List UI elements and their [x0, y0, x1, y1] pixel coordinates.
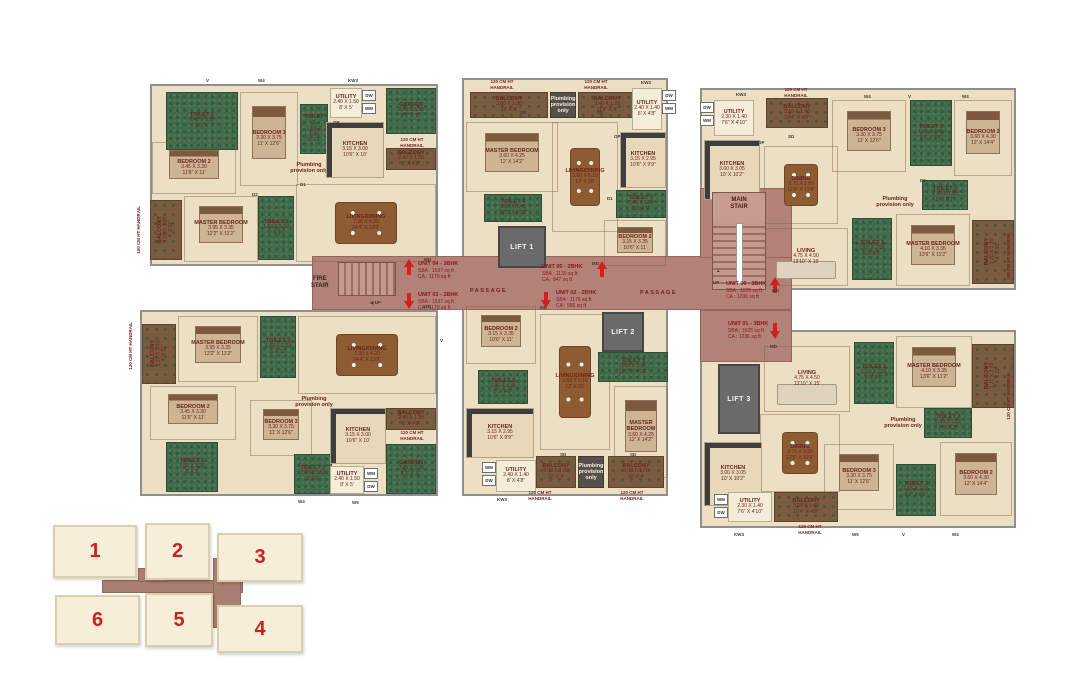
room-label: TOILET 31.50 X 3.305' X 11': [262, 218, 290, 238]
room-toilet-1: TOILET 11.50 X 2.555' X 8'6": [854, 342, 894, 404]
room-label: KITCHEN3.00 X 3.0510' X 10'2": [718, 160, 746, 180]
marker-kw3: KW3: [734, 532, 744, 537]
room-toilet-3: TOILET 31.50 X 3.305' X 11': [258, 196, 294, 260]
main-stair-rail: [736, 223, 743, 284]
room-kitchen: KITCHEN3.15 X 2.9510'6" X 9'9": [620, 132, 666, 188]
room-dim-ft: 5'2" X 8'6": [918, 136, 944, 142]
room-dim-ft: 8'2" X 11': [398, 114, 424, 120]
marker-v: V: [440, 338, 443, 343]
handrail-label: 120 CM HT HANDRAIL: [128, 322, 134, 370]
room-label: BEDROOM 23.45 X 3.3011'6" X 11': [176, 158, 211, 178]
appliance-dw: DW: [364, 481, 378, 492]
marker-md: MD: [540, 305, 547, 310]
marker-up: ◀ UP: [370, 300, 381, 306]
room-label: KITCHEN3.00 X 3.0510' X 10'2": [719, 464, 747, 484]
handrail-label: 120 CM HT HANDRAIL: [780, 524, 840, 535]
room-utility: UTILITY2.40 X 1.408' X 4'8"DWWM: [632, 88, 662, 130]
room-toilet-1: TOILET 13.50 X 1.4511'6" X 4'10": [598, 352, 668, 382]
room-toilet-1: TOILET 11.50 X 2.555' X 8'6": [852, 218, 892, 280]
room-label: TOILET 22.40 X 1.358' X 4'6": [489, 377, 517, 397]
marker-md: MD: [772, 288, 779, 293]
keyplan-unit-number: 3: [254, 546, 265, 569]
keyplan-unit-number: 2: [172, 540, 183, 563]
room-dim-ft: 10' X 4': [622, 475, 649, 481]
room-dim-ft: 10'6" X 10': [342, 153, 368, 159]
room-utility: UTILITY2.40 X 1.508' X 5'WMDW: [330, 466, 364, 494]
room-toilet-3: TOILET 31.55 X 2.555'2" X 8'6": [896, 464, 936, 516]
room-master-bedroom: MASTER BEDROOM4.10 X 3.3513'6" X 11'2": [896, 214, 970, 286]
room-dim-ft: 12' X 14'2": [616, 438, 666, 444]
room-bedroom-2: BEDROOM 23.15 X 3.3510'6" X 11': [604, 220, 666, 266]
room-label: KITCHEN3.15 X 3.0010'6" X 10': [341, 140, 369, 160]
unit-tag-line: CA : 1236 sq ft: [728, 334, 790, 340]
room-label: BEDROOM 23.60 X 4.3012' X 14'4": [965, 128, 1000, 148]
room-label: LIVING/DINING3.60 X 6.1012' X 20': [554, 372, 595, 392]
floorplan: PASSAGEPASSAGEFIRE STAIRMAIN STAIRLIFT 1…: [0, 0, 1080, 698]
room-name: MASTER BEDROOM: [616, 420, 666, 433]
room-plumbing-provision-only: Plumbing provision only: [578, 456, 604, 488]
room-label: MASTER BEDROOM3.95 X 3.3512'2" X 11'2": [193, 219, 248, 239]
unit-direction-arrow-down: [404, 292, 414, 309]
room-balcony: BALCONY3.60 X 1.3012' X 4': [536, 456, 576, 488]
room-label: Plumbing provision only: [882, 416, 924, 431]
passage-label: PASSAGE: [640, 290, 677, 296]
room-dim-ft: 12'2" X 11'2": [194, 232, 247, 238]
room-label: TOILET 22.40 X 1.508' X 5': [299, 464, 327, 484]
room-label: UTILITY2.40 X 1.408' X 4'8": [502, 466, 530, 486]
room-toilet-3: TOILET 31.50 X 3.305' X 11': [260, 316, 296, 378]
marker-md: MD: [424, 304, 431, 309]
marker-v: V: [206, 78, 209, 83]
marker-w4: W4: [962, 94, 969, 99]
room-label: BEDROOM 33.30 X 3.7511' X 12'6": [851, 126, 886, 146]
room-plumbing-provision-only: Plumbing provision only: [874, 190, 916, 214]
unit-tag-line: CA : 956 sq ft: [556, 303, 618, 309]
room-living: LIVING4.75 X 4.5013'10" X 15': [764, 346, 850, 412]
room-dim-ft: 12' X 14'4": [959, 482, 992, 488]
room-dim-ft: 8' X 4'8": [503, 479, 529, 485]
room-name: Plumbing provision only: [295, 396, 333, 409]
room-toilet-4: TOILET 43.50 X 1.4511'6" X 4'10": [484, 194, 542, 222]
room-dim-ft: 10'6" X 10': [345, 439, 371, 445]
unit-tag-line: UNIT 03 - 3BHK: [418, 292, 480, 299]
room-balcony: BALCONY2.40 X 1.308' X 4'6": [386, 408, 436, 430]
room-dim-ft: 5' X 8'6": [859, 252, 885, 258]
marker-w4: W4: [258, 78, 265, 83]
marker-w4: W4: [952, 532, 959, 537]
marker-sd: SD: [630, 452, 636, 457]
room-dim-ft: 11'6" X 11': [176, 416, 209, 422]
room-label: TOILET 43.50 X 1.4511'6" X 4'10": [498, 198, 528, 218]
room-label: TOILET 31.55 X 2.555'2" X 8'6": [917, 123, 945, 143]
room-dim-ft: 8' X 5': [189, 124, 215, 130]
appliance-wm: WM: [714, 494, 728, 505]
marker-md: MD: [424, 257, 431, 262]
marker-kw3: KW3: [641, 80, 651, 85]
room-label: MASTER BEDROOM4.10 X 3.3513'6" X 11'2": [906, 362, 961, 382]
room-dim-ft: 12' X 20': [565, 180, 604, 186]
room-dim-ft: 11'6" X 4'10": [499, 211, 527, 217]
room-dim-ft: 11' X 12'6": [852, 139, 885, 145]
marker-kw3: KW3: [348, 78, 358, 83]
unit-direction-arrow-down: [770, 322, 780, 339]
room-dim-ft: 8' X 5': [333, 106, 359, 112]
unit-tag-line: UNIT 04 - 3BHK: [418, 261, 480, 268]
room-label: TOILET 11.50 X 2.555' X 8'6": [858, 239, 886, 259]
room-label: MASTER BEDROOM3.60 X 4.2512' X 14'2": [484, 147, 539, 167]
appliance-wm: WM: [364, 468, 378, 479]
room-balcony: BALCONY3.10 X 1.4010'4" X 4'8": [774, 492, 838, 522]
room-utility: UTILITY2.40 X 1.508' X 5'DWWM: [330, 88, 362, 118]
room-label: UTILITY2.30 X 1.407'6" X 4'10": [736, 497, 764, 517]
room-dim-ft: 8' X 4'6": [397, 422, 424, 428]
room-label: BEDROOM 33.30 X 3.7511' X 12'6": [841, 467, 876, 487]
room-living-dining: LIVING/DINING7.30 X 4.2024'4" X 13'9": [298, 316, 436, 394]
room-name: Plumbing provision only: [550, 96, 575, 115]
room-utility: UTILITY2.30 X 1.407'6" X 4'10"WMDW: [728, 492, 772, 522]
room-plumbing-provision-only: Plumbing provision only: [550, 92, 576, 118]
room-label: BEDROOM 33.30 X 3.7511' X 12'6": [251, 129, 286, 149]
room-dim-ft: 12' X 20': [555, 385, 594, 391]
appliance-wm: WM: [662, 103, 676, 114]
room-plumbing-provision-only: Plumbing provision only: [288, 158, 330, 178]
main-stair: MAIN STAIR: [712, 192, 766, 290]
room-label: BALCONY1.20 X 3.304' X 11': [149, 339, 169, 368]
room-name: Plumbing provision only: [883, 417, 923, 430]
room-dim-ft: 12'2" X 11'2": [191, 352, 244, 358]
appliance-wm: WM: [362, 103, 376, 114]
room-label: BEDROOM 23.15 X 3.3510'6" X 11': [617, 233, 652, 253]
appliance-dw: DW: [662, 90, 676, 101]
room-label: TOILET 31.50 X 3.305' X 11': [264, 337, 292, 357]
room-dim-ft: 10'6" X 11': [618, 246, 651, 252]
room-dim-ft: 8' X 4'6": [628, 207, 654, 213]
room-dim-ft: 11' X 12'6": [252, 142, 285, 148]
marker-d2: D2: [252, 192, 258, 197]
room-dining: DINING3.75 X 3.5012'6" X 11'8": [764, 146, 838, 224]
handrail-label: 120 CM HT HANDRAIL: [136, 206, 142, 254]
room-label: BALCONY3.10 X 1.4010'4" X 4'8": [791, 497, 820, 517]
marker-d1: D1: [607, 196, 613, 201]
room-dim-ft: 8' X 5': [300, 477, 326, 483]
marker-d1: D1: [852, 240, 858, 245]
room-dim-ft: 5' X 8'6": [861, 376, 887, 382]
room-toilet-1: TOILET 11.50 X 1.505' X 5': [300, 104, 328, 154]
room-dim-ft: 5' X 11': [263, 231, 289, 237]
room-dim-ft: 12' X 14'2": [485, 160, 538, 166]
room-dim-ft: 8' X 4'6": [490, 390, 516, 396]
room-label: TOILET 11.50 X 1.505' X 5': [178, 457, 206, 477]
room-dim-ft: 11' X 12'6": [264, 431, 297, 437]
room-label: LIVING/DINING3.60 X 6.1012' X 20': [564, 167, 605, 187]
room-dim-ft: 12' X 4': [495, 108, 522, 114]
handrail-label: 120 CM HT HANDRAIL: [766, 87, 826, 98]
room-dim-ft: 10'6" X 11': [484, 338, 517, 344]
room-dim-ft: 10'4" X 4'8": [783, 116, 810, 122]
room-label: LIVING4.75 X 4.5013'10" X 15': [793, 369, 821, 389]
room-dim-ft: 10' X 10'2": [720, 477, 746, 483]
marker-up: UP: [713, 280, 719, 285]
room-toilet-1: TOILET 11.50 X 1.505' X 5': [166, 442, 218, 492]
appliance-dw: DW: [482, 475, 496, 486]
room-dim-ft: 13'6" X 11'2": [906, 253, 959, 259]
appliance-wm: WM: [482, 462, 496, 473]
room-label: UTILITY2.40 X 1.508' X 5': [333, 470, 361, 490]
room-label: TOILET 22.40 X 1.508' X 5': [188, 111, 216, 131]
room-balcony: BALCONY3.00 X 1.2010' X 4': [608, 456, 664, 488]
room-plumbing-provision-only: Plumbing provision only: [882, 412, 924, 434]
room-dim-ft: 10'6" X 9'9": [630, 163, 656, 169]
room-label: Plumbing provision only: [577, 462, 604, 483]
marker-v: V: [902, 532, 905, 537]
room-label: BALCONY3.00 X 1.2010' X 4': [621, 462, 650, 482]
room-dim-ft: 11'6" X 11': [177, 171, 210, 177]
room-name: Plumbing provision only: [289, 162, 329, 175]
marker-sd: SD: [788, 134, 794, 139]
room-label: BALCONY1.20 X 3.304' X 11': [983, 237, 1003, 266]
room-toilet-2: TOILET 22.40 X 1.558' X 5'2": [922, 180, 968, 210]
room-dim-ft: 13'6" X 11'2": [907, 375, 960, 381]
appliance-wm: WM: [700, 115, 714, 126]
room-label: Plumbing provision only: [294, 395, 334, 410]
room-kitchen: KITCHEN3.15 X 3.0010'6" X 10': [330, 408, 386, 464]
room-dim-ft: 12' X 4': [542, 475, 569, 481]
room-label: MASTER BEDROOM3.95 X 3.3512'2" X 11'2": [190, 339, 245, 359]
room-toilet-3: TOILET 31.55 X 2.555'2" X 8'6": [910, 100, 952, 166]
room-balcony: BALCONY1.20 X 3.304' X 11': [142, 324, 176, 384]
marker-kw3: KW3: [497, 497, 507, 502]
room-dim-ft: 4' X 11': [996, 238, 1002, 265]
unit-tag-line: CA : 1236 sq ft: [726, 294, 788, 300]
room-dim-ft: 4' X 11': [169, 216, 175, 243]
lift-3: LIFT 3: [718, 364, 760, 434]
handrail-label: 120 CM HT HANDRAIL: [1006, 372, 1012, 420]
room-label: TOILET 31.55 X 2.555'2" X 8'6": [902, 480, 930, 500]
room-label: LIVING4.75 X 4.5013'10" X 15': [792, 247, 820, 267]
keyplan-unit-number: 4: [254, 618, 265, 641]
room-label: BALCONY3.10 X 1.4010'4" X 4'8": [782, 103, 811, 123]
room-dim-ft: 24'4" X 13'9": [347, 358, 386, 364]
keyplan-unit-1: 1: [53, 525, 137, 578]
room-bedroom-2: BEDROOM 23.60 X 4.3012' X 14'4": [954, 100, 1012, 176]
room-kitchen: KITCHEN3.00 X 3.0510' X 10'2": [704, 140, 760, 200]
handrail-label: 120 CM HT HANDRAIL: [606, 490, 658, 501]
marker-w5: W5: [352, 500, 359, 505]
room-toilet-2: TOILET 22.40 X 1.358' X 4'6": [478, 370, 528, 404]
room-label: TOILET 11.50 X 2.555' X 8'6": [860, 363, 888, 383]
room-label: KITCHEN3.15 X 2.9510'6" X 9'9": [629, 150, 657, 170]
unit-tag-unit-01-3bhk: UNIT 01 - 3BHKSBA : 1625 sq ftCA : 1236 …: [728, 321, 790, 340]
room-master-bedroom: MASTER BEDROOM4.10 X 3.3513'6" X 11'2": [896, 336, 972, 408]
room-toilet-3: TOILET 32.40 X 1.358' X 4'6": [616, 190, 666, 218]
room-balcony: BALCONY3.60 X 1.3012' X 4': [470, 92, 548, 118]
room-living-dining: LIVING/DINING3.60 X 6.1012' X 20': [552, 122, 618, 232]
room-dim-ft: 11' X 12'6": [842, 480, 875, 486]
marker-sd: SD: [520, 110, 526, 115]
room-dim-ft: 8' X 4'6": [397, 162, 424, 168]
room-label: TOILET 32.40 X 1.358' X 4'6": [627, 194, 655, 214]
room-dim-ft: 13'10" X 15': [794, 382, 820, 388]
marker-op: OP: [333, 120, 340, 125]
room-kitchen: KITCHEN3.15 X 2.9510'6" X 9'9": [466, 408, 534, 458]
main-stair-label: MAIN STAIR: [713, 197, 765, 211]
keyplan-unit-6: 6: [55, 595, 140, 645]
unit-tag-unit-02-2bhk: UNIT 02 - 2BHKSBA : 1175 sq ftCA : 956 s…: [556, 290, 618, 309]
unit-tag-line: CA : 947 sq ft: [542, 277, 604, 283]
keyplan-unit-4: 4: [217, 605, 303, 653]
room-label: KITCHEN3.15 X 2.9510'6" X 9'9": [486, 423, 514, 443]
room-name: Plumbing provision only: [875, 196, 915, 209]
handrail-label: 120 CM HT HANDRAIL: [387, 137, 437, 148]
room-bedroom-2: BEDROOM 23.45 X 3.3011'6" X 11': [150, 386, 236, 440]
keyplan-unit-number: 5: [173, 609, 184, 632]
room-bedroom-2: BEDROOM 23.45 X 3.3011'6" X 11': [152, 142, 236, 194]
room-dim-ft: 8' X 5': [334, 483, 360, 489]
room-label: MASTER BEDROOM3.60 X 4.2512' X 14'2": [615, 419, 667, 445]
room-name: Plumbing provision only: [578, 463, 603, 482]
handrail-label: 120 CM HT HANDRAIL: [472, 79, 532, 90]
room-label: UTILITY2.30 X 1.407'6" X 4'10": [720, 108, 748, 128]
room-label: KITCHEN3.15 X 3.0010'6" X 10': [344, 426, 372, 446]
room-balcony: BALCONY2.40 X 1.308' X 4'6": [386, 148, 436, 170]
room-label: BEDROOM 23.60 X 4.3012' X 14'4": [958, 469, 993, 489]
room-kitchen: KITCHEN3.15 X 3.0010'6" X 10': [326, 122, 384, 178]
room-label: UTILITY2.40 X 1.508' X 5': [332, 93, 360, 113]
room-label: GARDEN2.45 X 3.308'2" X 11': [397, 459, 425, 479]
room-label: BEDROOM 23.15 X 3.3510'6" X 11': [483, 325, 518, 345]
marker-op: OP: [758, 140, 765, 145]
room-label: BEDROOM 23.45 X 3.3011'6" X 11': [175, 403, 210, 423]
lift-2: LIFT 2: [602, 312, 644, 352]
room-label: DINING3.75 X 3.5012'6" X 11'8": [785, 443, 815, 463]
room-utility: UTILITY2.30 X 1.407'6" X 4'10"DWWM: [714, 100, 754, 136]
room-garden: GARDEN2.45 X 3.308'2" X 11': [386, 444, 436, 494]
room-bedroom-3: BEDROOM 33.30 X 3.7511' X 12'6": [832, 100, 906, 172]
room-master-bedroom: MASTER BEDROOM3.95 X 3.3512'2" X 11'2": [184, 196, 258, 262]
room-bedroom-2: BEDROOM 23.15 X 3.3510'6" X 11': [466, 306, 536, 364]
room-balcony: BALCONY3.40 X 1.2011'4" X 4': [578, 92, 636, 118]
lift-1: LIFT 1: [498, 226, 546, 268]
room-label: MASTER BEDROOM4.10 X 3.3513'6" X 11'2": [905, 240, 960, 260]
unit-tag-line: UNIT 02 - 2BHK: [556, 290, 618, 297]
keyplan-unit-number: 1: [89, 540, 100, 563]
room-name: TOILET 1: [302, 114, 326, 127]
room-dim-ft: 8' X 5'2": [932, 198, 958, 204]
room-dim-ft: 5' X 5': [179, 470, 205, 476]
marker-md: MD: [592, 261, 599, 266]
room-dim-ft: 12'6" X 11'8": [787, 188, 815, 194]
room-label: BALCONY2.40 X 1.308' X 4'6": [396, 409, 425, 429]
appliance-dw: DW: [362, 90, 376, 101]
room-label: LIVING/DINING7.30 X 4.2024'4" X 13'9": [345, 213, 386, 233]
room-balcony: BALCONY1.20 X 3.304' X 11': [150, 200, 182, 260]
room-label: DINING3.75 X 3.5012'6" X 11'8": [786, 175, 816, 195]
room-label: TOILET 13.50 X 1.4511'6" X 4'10": [618, 357, 648, 377]
room-toilet-2: TOILET 22.40 X 1.558' X 5'2": [924, 408, 972, 438]
marker-w4: W4: [864, 94, 871, 99]
fire-stair-label: FIRE STAIR: [311, 276, 329, 290]
room-living-dining: LIVING/DINING3.60 X 6.1012' X 20': [540, 314, 610, 450]
room-dim-ft: 11'6" X 4'10": [619, 370, 647, 376]
marker-v: V: [908, 94, 911, 99]
unit-tag-line: CA : 1170 sq ft: [418, 274, 480, 280]
marker-w4: W4: [298, 499, 305, 504]
room-dim-ft: 5'2" X 8'6": [903, 493, 929, 499]
room-label: TOILET 22.40 X 1.558' X 5'2": [931, 185, 959, 205]
handrail-label: 120 CM HT HANDRAIL: [566, 79, 626, 90]
room-label: BALCONY1.20 X 3.304' X 11': [156, 215, 176, 244]
appliance-dw: DW: [714, 507, 728, 518]
keyplan-unit-number: 6: [92, 609, 103, 632]
marker-sd: SD: [560, 452, 566, 457]
room-label: Plumbing provision only: [874, 195, 916, 210]
unit-tag-line: UNIT 01 - 3BHK: [728, 321, 790, 328]
room-dim-ft: 5' X 5': [302, 138, 326, 144]
room-dim-ft: 10'6" X 9'9": [487, 436, 513, 442]
room-label: BALCONY3.60 X 1.3012' X 4': [541, 462, 570, 482]
room-dim-ft: 4' X 11': [162, 340, 168, 367]
room-dim-ft: 13'10" X 15': [793, 260, 819, 266]
room-label: GARDEN2.45 X 3.308'2" X 11': [397, 101, 425, 121]
room-master-bedroom: MASTER BEDROOM3.95 X 3.3512'2" X 11'2": [178, 316, 258, 382]
marker-md: MD: [770, 344, 777, 349]
handrail-label: 120 CM HT HANDRAIL: [1006, 232, 1012, 280]
keyplan-unit-3: 3: [217, 533, 303, 582]
room-dim-ft: 7'6" X 4'10": [721, 121, 747, 127]
keyplan-unit-2: 2: [145, 523, 210, 580]
marker-w5: W5: [852, 532, 859, 537]
room-dim-ft: 12'6" X 11'8": [786, 456, 814, 462]
room-dim-ft: 5' X 11': [265, 350, 291, 356]
room-dim-ft: 4' X 11': [996, 362, 1002, 389]
marker-kw3: KW3: [736, 92, 746, 97]
room-dim-ft: 8' X 5'2": [935, 426, 961, 432]
room-label: Plumbing provision only: [549, 95, 576, 116]
room-label: BEDROOM 33.30 X 3.7511' X 12'6": [263, 418, 298, 438]
room-label: UTILITY2.40 X 1.408' X 4'8": [633, 99, 661, 119]
room-dim-ft: 12' X 14'4": [966, 141, 999, 147]
room-dim-ft: 8'2" X 11': [398, 472, 424, 478]
room-bedroom-2: BEDROOM 23.60 X 4.3012' X 14'4": [940, 442, 1012, 516]
unit-tag-unit-05-2bhk: UNIT 05 - 2BHKSBA : 1139 sq ftCA : 947 s…: [542, 264, 604, 283]
room-plumbing-provision-only: Plumbing provision only: [294, 392, 334, 412]
room-label: TOILET 22.40 X 1.558' X 5'2": [934, 413, 962, 433]
marker-d2: D2: [920, 178, 926, 183]
handrail-label: 120 CM HT HANDRAIL: [514, 490, 566, 501]
room-label: TOILET 11.50 X 1.505' X 5': [301, 113, 327, 145]
room-utility: UTILITY2.40 X 1.408' X 4'8"WMDW: [496, 460, 536, 492]
room-master-bedroom: MASTER BEDROOM3.60 X 4.2512' X 14'2": [466, 122, 558, 192]
unit-tag-unit-04-3bhk: UNIT 04 - 3BHKSBA : 1537 sq ftCA : 1170 …: [418, 261, 480, 280]
room-dim-ft: 8' X 4'8": [634, 112, 660, 118]
room-garden: GARDEN2.45 X 3.308'2" X 11': [386, 88, 436, 134]
room-label: BALCONY1.20 X 3.304' X 11': [983, 361, 1003, 390]
unit-direction-arrow-up: [404, 259, 414, 276]
fire-stair: [338, 262, 396, 296]
room-label: Plumbing provision only: [288, 161, 330, 176]
marker-op: OP: [614, 134, 621, 139]
room-label: BALCONY2.40 X 1.308' X 4'6": [396, 149, 425, 169]
marker-sd: SD: [597, 110, 603, 115]
marker-d1: D1: [300, 182, 306, 187]
room-dim-ft: 7'6" X 4'10": [737, 510, 763, 516]
room-dim-ft: 10' X 10'2": [719, 173, 745, 179]
room-balcony: BALCONY3.10 X 1.4010'4" X 4'8": [766, 98, 828, 128]
appliance-dw: DW: [700, 102, 714, 113]
room-dim-ft: 24'4" X 13'9": [346, 226, 385, 232]
room-label: LIVING/DINING7.30 X 4.2024'4" X 13'9": [346, 345, 387, 365]
handrail-label: 120 CM HT HANDRAIL: [387, 430, 437, 441]
